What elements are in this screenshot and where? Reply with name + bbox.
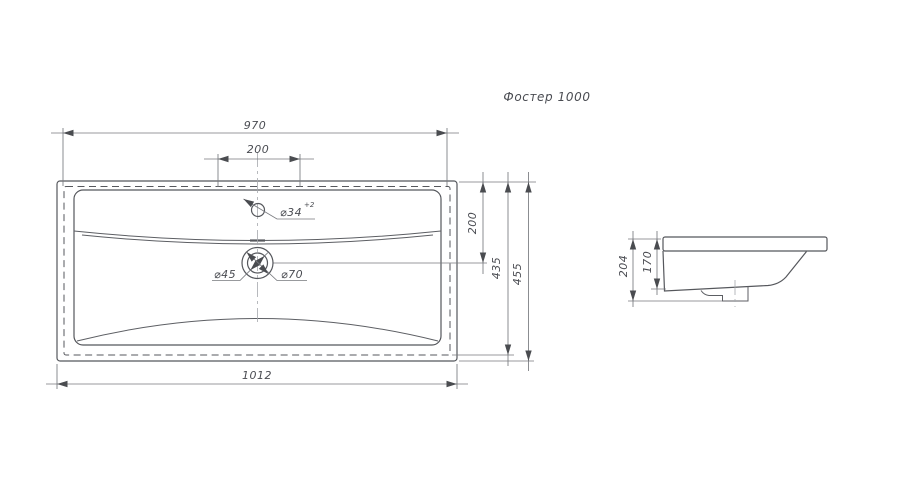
dim-height-overall-value: 455 <box>511 263 524 286</box>
dim-arrow-icon <box>630 239 636 250</box>
dim-arrow-icon <box>290 156 301 162</box>
dim-width-overall: 1012 <box>46 364 468 389</box>
dim-arrow-icon <box>437 130 448 136</box>
front-view: ⌀34 +2 ⌀45 ⌀70 <box>57 152 487 361</box>
dim-arrow-icon <box>505 345 511 356</box>
dim-arrow-icon <box>505 182 511 193</box>
dim-height-inner: 435 <box>490 172 511 366</box>
drain-inner-label: ⌀45 <box>214 268 236 281</box>
sink-hidden-edge-dashed <box>64 187 450 356</box>
dim-side-height-total: 204 <box>617 231 636 307</box>
dim-width-top-value: 970 <box>244 119 267 132</box>
dim-arrow-icon <box>630 291 636 302</box>
dim-width-overall-value: 1012 <box>242 369 272 382</box>
leader-arrow-icon <box>259 264 271 276</box>
dim-height-inner-value: 435 <box>490 257 503 280</box>
faucet-hole-tolerance: +2 <box>304 201 315 209</box>
dim-faucet-span-value: 200 <box>247 143 270 156</box>
dim-arrow-icon <box>525 182 531 193</box>
dim-arrow-icon <box>480 182 486 193</box>
dim-arrow-icon <box>218 156 229 162</box>
dim-drain-depth-value: 200 <box>466 212 479 235</box>
dim-drain-depth: 200 <box>466 172 486 274</box>
technical-drawing: Фостер 1000 ⌀34 +2 ⌀45 ⌀70 <box>0 0 900 487</box>
drawing-page: Фостер 1000 ⌀34 +2 ⌀45 ⌀70 <box>0 0 900 487</box>
leader-arrow-icon <box>242 196 254 207</box>
dim-side-height-total-value: 204 <box>617 255 630 278</box>
side-rim-outline <box>663 237 827 251</box>
faucet-hole-label: ⌀34 <box>280 206 302 219</box>
dim-arrow-icon <box>447 381 458 387</box>
side-view-dimensions: 204 170 <box>617 231 722 307</box>
dim-arrow-icon <box>57 381 68 387</box>
dim-side-height-front: 170 <box>641 231 660 295</box>
dim-arrow-icon <box>63 130 74 136</box>
sink-outer-outline <box>57 181 457 361</box>
side-view <box>663 237 827 307</box>
front-view-dimensions: 970 200 1012 200 435 <box>46 119 536 389</box>
dim-arrow-icon <box>480 253 486 264</box>
dim-height-overall: 455 <box>511 172 532 371</box>
drawing-title: Фостер 1000 <box>503 90 590 104</box>
dim-arrow-icon <box>525 351 531 362</box>
dim-side-height-front-value: 170 <box>641 251 654 274</box>
drain-outer-label: ⌀70 <box>281 268 303 281</box>
dim-arrow-icon <box>654 279 660 290</box>
dim-arrow-icon <box>654 239 660 250</box>
